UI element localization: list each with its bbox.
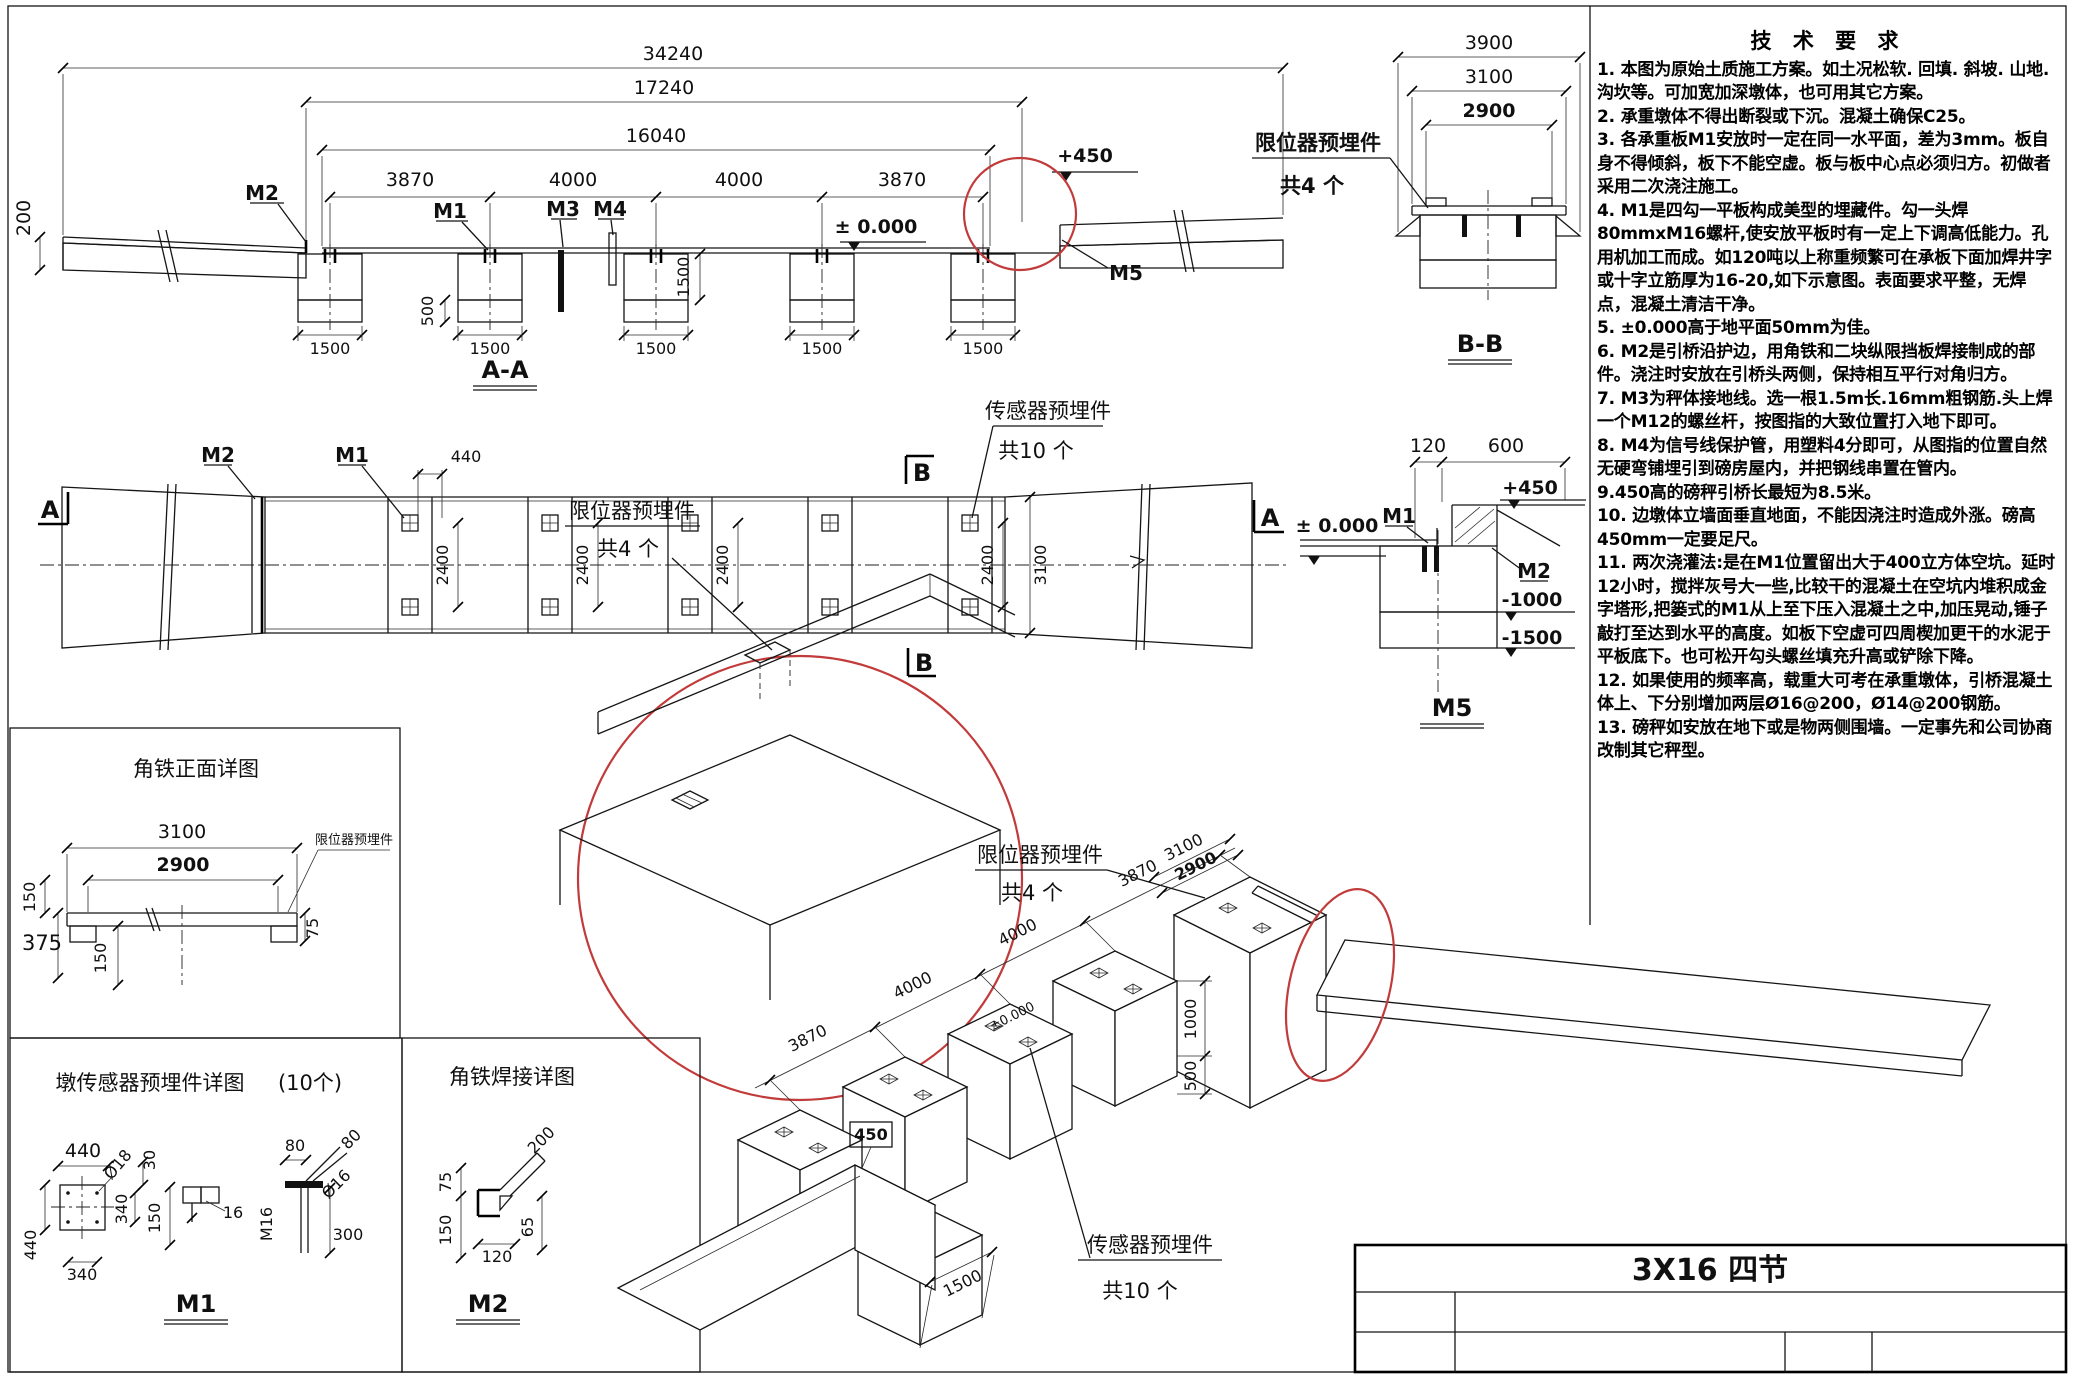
dim-1500: 1500: [636, 339, 677, 358]
level-plus450: +450: [1057, 145, 1113, 167]
section-bb-title: B-B: [1457, 330, 1504, 358]
label-m5: M5: [1109, 261, 1143, 285]
dim-340: 340: [67, 1265, 98, 1284]
marker-b-top: B: [913, 459, 931, 487]
limiter-angle-right: [1532, 198, 1552, 206]
callout-sensor-plan-count: 共10 个: [998, 439, 1073, 463]
dim-2900: 2900: [1463, 100, 1516, 122]
iso-callout-limiter-count: 共4 个: [1001, 881, 1063, 905]
callout-limiter-bb-count: 共4 个: [1280, 174, 1345, 198]
dim-1500-depth: 1500: [674, 257, 693, 298]
dim-2400: 2400: [713, 545, 732, 586]
marker-b-bottom: B: [915, 649, 933, 677]
drawing-sheet: 34240 17240 16040 3870 4000 4000 3870 20…: [0, 0, 2073, 1377]
tech-note-2: 2. 承重墩体不得出断裂或下沉。混凝土确保C25。: [1597, 106, 2059, 130]
dim-80-diag: 80: [337, 1125, 365, 1153]
dim-2400: 2400: [573, 545, 592, 586]
dim-3100: 3100: [1031, 545, 1050, 586]
detail-m1-name: M1: [176, 1290, 217, 1318]
tech-notes: 技 术 要 求 1. 本图为原始土质施工方案。如土况松软. 回填. 斜坡. 山地…: [1597, 30, 2059, 764]
dim-150-m1: 150: [145, 1203, 164, 1234]
dim-4000: 4000: [549, 169, 597, 191]
dim-75-m2: 75: [436, 1172, 455, 1192]
dim-1500: 1500: [802, 339, 843, 358]
callout-limiter-angle: 限位器预埋件: [315, 833, 393, 848]
tech-note-13: 13. 磅秤如安放在地下或是物两侧围墙。一定事先和公司协商改制其它秤型。: [1597, 717, 2059, 764]
dim-34240: 34240: [643, 43, 703, 65]
dim-4000: 4000: [715, 169, 763, 191]
dim-1500: 1500: [310, 339, 351, 358]
dim-16040: 16040: [626, 125, 686, 147]
dim-440: 440: [451, 447, 482, 466]
label-m4: M4: [593, 197, 627, 221]
dim-150: 150: [20, 882, 39, 913]
tech-note-6: 6. M2是引桥沿护边，用角铁和二块纵限挡板焊接制成的部件。浇注时安放在引桥头两…: [1597, 341, 2059, 388]
label-m3: M3: [546, 197, 580, 221]
callout-limiter-bb: 限位器预埋件: [1255, 131, 1381, 155]
level-450-m5: +450: [1502, 477, 1558, 499]
section-bb: 3900 3100 2900 限位器预埋件 共4 个 B-B: [1252, 32, 1585, 364]
dim-500: 500: [418, 296, 437, 327]
marker-a-right: A: [1261, 504, 1280, 532]
dim-16: 16: [223, 1203, 243, 1222]
callout-sensor-plan: 传感器预埋件: [985, 399, 1111, 423]
label-m1-m5: M1: [1382, 504, 1416, 528]
dim-d18: Ø18: [100, 1146, 136, 1183]
tech-note-11: 11. 两次浇灌法:是在M1位置留出大于400立方体空坑。延时12小时，搅拌灰号…: [1597, 552, 2059, 670]
tech-note-4: 4. M1是四勾一平板构成美型的埋藏件。勾一头焊80mmxM16螺杆,使安放平板…: [1597, 200, 2059, 318]
detail-m5-title: M5: [1432, 694, 1473, 722]
dim-2400: 2400: [433, 545, 452, 586]
dim-3870: 3870: [878, 169, 926, 191]
dim-300: 300: [333, 1225, 364, 1244]
detail-boxes: 角铁正面详图 3100 2900 150 375 150 75 限位器预埋件 墩…: [10, 728, 700, 1372]
dim-3100-angle: 3100: [158, 821, 206, 843]
detail-angle-front-title: 角铁正面详图: [133, 757, 259, 781]
dim-440-m1: 440: [65, 1140, 101, 1162]
dim-17240: 17240: [634, 77, 694, 99]
title-block-model: 3X16 四节: [1632, 1253, 1788, 1288]
callout-limiter-corner-count: 共4 个: [597, 537, 659, 561]
tech-note-10: 10. 边墩体立墙面垂直地面，不能因浇注时造成外涨。磅高450mm一定要足尺。: [1597, 505, 2059, 552]
level-minus1000: -1000: [1502, 589, 1563, 611]
dim-1500: 1500: [963, 339, 1004, 358]
tech-note-5: 5. ±0.000高于地平面50mm为佳。: [1597, 317, 2059, 341]
dim-30: 30: [140, 1150, 159, 1170]
iso-dim-4000: 4000: [890, 967, 935, 1002]
dim-2900-angle: 2900: [157, 854, 210, 876]
iso-callout-sensor: 传感器预埋件: [1087, 1233, 1213, 1257]
dim-600: 600: [1488, 435, 1524, 457]
detail-m1: 墩传感器预埋件详图 (10个) 440 Ø18 30 340 440 340 1…: [21, 1071, 365, 1324]
tech-note-1: 1. 本图为原始土质施工方案。如土况松软. 回填. 斜坡. 山地. 沟坎等。可加…: [1597, 59, 2059, 106]
label-m1: M1: [433, 199, 467, 223]
tech-note-7: 7. M3为秤体接地线。选一根1.5m长.16mm粗钢筋.头上焊一个M12的螺丝…: [1597, 388, 2059, 435]
iso-dim-450: 450: [854, 1125, 887, 1144]
corner-detail: 限位器预埋件 共4 个: [560, 499, 1022, 1100]
tech-note-12: 12. 如果使用的频率高，载重大可考在承重墩体，引桥混凝土体上、下分别增加两层Ø…: [1597, 670, 2059, 717]
detail-m2: 角铁焊接详图 200 75 150 120 65 M2: [436, 1065, 575, 1324]
m3-ground-rod: [558, 250, 564, 312]
dim-375: 375: [22, 931, 62, 955]
dim-440-m1: 440: [21, 1230, 40, 1261]
label-m2-m5: M2: [1517, 559, 1551, 583]
aa-left-ramp: 200: [13, 200, 306, 282]
plan-view: 2400 2400 2400 2400 3100 440 M1 M2 A A B…: [38, 399, 1290, 677]
marker-a-left: A: [41, 496, 60, 524]
dim-80: 80: [285, 1136, 305, 1155]
section-aa-title: A-A: [481, 356, 529, 384]
dim-340: 340: [112, 1194, 131, 1225]
limiter-angle-left: [1426, 198, 1446, 206]
dim-3900: 3900: [1465, 32, 1513, 54]
m4-conduit: [609, 233, 616, 285]
dim-2400: 2400: [978, 545, 997, 586]
level-minus1500: -1500: [1502, 627, 1563, 649]
iso-callout-limiter: 限位器预埋件: [977, 843, 1103, 867]
dim-150: 150: [91, 943, 110, 974]
label-m1-plan: M1: [335, 443, 369, 467]
dim-120: 120: [1410, 435, 1446, 457]
iso-dim-500: 500: [1181, 1061, 1200, 1092]
iso-callout-sensor-count: 共10 个: [1102, 1279, 1177, 1303]
iso-dim-1000: 1000: [1181, 999, 1200, 1040]
dim-75: 75: [303, 918, 322, 938]
dim-200: 200: [13, 200, 35, 236]
iso-platform-slab: [1317, 940, 1990, 1076]
section-aa: 34240 17240 16040 3870 4000 4000 3870 20…: [13, 43, 1288, 390]
detail-m5: 120 600 +450 ± 0.000 M1 M2 -1000 -1500 M…: [1296, 435, 1586, 728]
detail-m1-title: 墩传感器预埋件详图: [56, 1071, 245, 1095]
tech-note-8: 8. M4为信号线保护管，用塑料4分即可，从图指的位置自然无硬弯铺埋引到磅房屋内…: [1597, 435, 2059, 482]
tech-note-9: 9.450高的磅秤引桥长最短为8.5米。: [1597, 482, 2059, 506]
dim-150-m2: 150: [436, 1215, 455, 1246]
dim-200: 200: [524, 1123, 559, 1158]
label-m2-plan: M2: [201, 443, 235, 467]
level-zero: ± 0.000: [835, 216, 918, 238]
callout-limiter-corner: 限位器预埋件: [569, 499, 695, 523]
dim-3870: 3870: [386, 169, 434, 191]
aa-right-ramp: +450: [1052, 145, 1283, 272]
iso-dim-3870: 3870: [1115, 855, 1160, 890]
dim-m16: M16: [257, 1207, 276, 1241]
dim-65: 65: [518, 1217, 537, 1237]
title-block: 3X16 四节: [1355, 1245, 2066, 1372]
tech-note-3: 3. 各承重板M1安放时一定在同一水平面，差为3mm。板自身不得倾斜，板下不能空…: [1597, 129, 2059, 200]
detail-angle-front: 角铁正面详图 3100 2900 150 375 150 75 限位器预埋件: [20, 757, 393, 990]
dim-120-m2: 120: [482, 1247, 513, 1266]
label-m2: M2: [245, 181, 279, 205]
tech-notes-title: 技 术 要 求: [1597, 30, 2059, 54]
iso-dim-3870: 3870: [785, 1020, 830, 1055]
dim-3100: 3100: [1465, 66, 1513, 88]
detail-m2-title: 角铁焊接详图: [449, 1065, 575, 1089]
level-zero-m5: ± 0.000: [1296, 515, 1379, 537]
aa-piers: 1500 1500 1500 1500 1500: [293, 244, 1020, 358]
detail-m1-title-count: (10个): [278, 1071, 342, 1095]
detail-m2-name: M2: [468, 1290, 509, 1318]
dim-d16: Ø16: [318, 1166, 355, 1203]
